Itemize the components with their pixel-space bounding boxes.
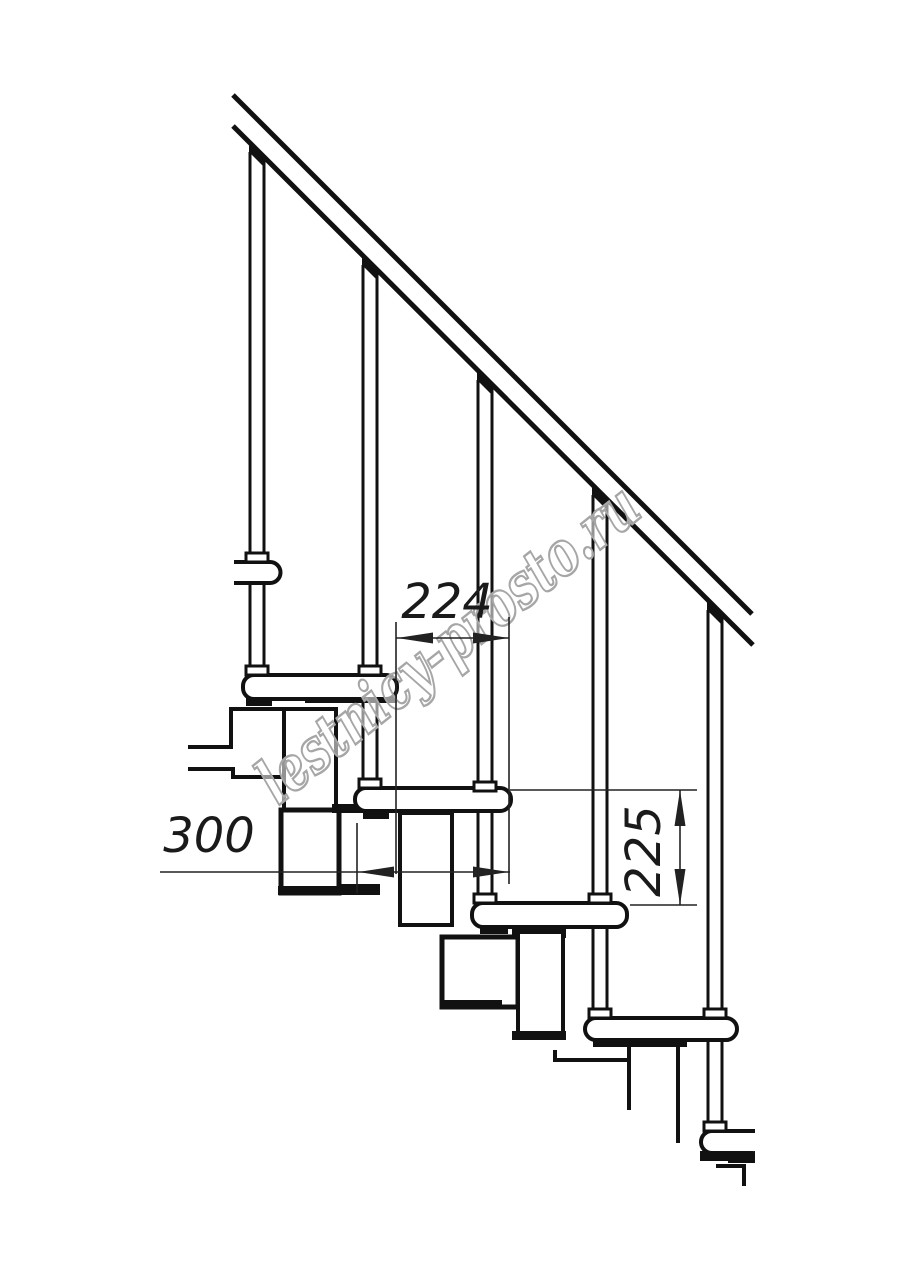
baluster-3-lower [478, 811, 492, 894]
baluster-3-collar-a [474, 782, 496, 791]
module-tube-2 [400, 813, 452, 925]
dimension-225-arrow-down [675, 869, 686, 905]
baluster-5-collar-a [704, 1009, 726, 1018]
baluster-5-lower [708, 1040, 722, 1122]
tread-6 [701, 1131, 755, 1153]
baluster-1 [246, 143, 268, 675]
module-tube-3 [518, 932, 563, 1035]
module-plate-3-bottom [512, 1031, 566, 1040]
module-connector-1 [338, 884, 380, 895]
tread-5 [585, 1018, 737, 1040]
dimension-300-arrow-left [358, 867, 394, 878]
baluster-1-collar-b [246, 666, 268, 675]
module-collar-1 [281, 810, 339, 893]
baluster-1-lower [250, 583, 264, 666]
module-collar-2-plate [440, 1000, 502, 1009]
baluster-5 [704, 601, 726, 1131]
module-collar-2 [442, 937, 518, 1007]
baluster-5-upper [708, 610, 722, 1009]
module-collar-1-plate [278, 886, 342, 895]
dimension-300-label: 300 [163, 808, 255, 864]
baluster-2-collar-b [359, 779, 381, 788]
baluster-1-upper [250, 152, 264, 553]
baluster-2-upper [363, 265, 377, 666]
technical-drawing: lestnicy-prosto.ru 224 300 225 [0, 0, 914, 1280]
baluster-1-collar-a [246, 553, 268, 562]
cut-line-mid [555, 1050, 627, 1060]
baluster-4-lower [593, 927, 607, 1009]
dimension-225: 225 [616, 790, 686, 905]
baluster-4-collar-b [589, 1009, 611, 1018]
baluster-5-collar-b [704, 1122, 726, 1131]
baluster-3-collar-b [474, 894, 496, 903]
baluster-4-collar-a [589, 894, 611, 903]
tread-1 [234, 562, 281, 583]
dimension-225-label: 225 [616, 805, 672, 897]
cut-line-bottom [716, 1166, 744, 1186]
tread-4 [472, 903, 627, 927]
dimension-225-arrow-up [675, 790, 686, 826]
dimension-224-label: 224 [401, 574, 493, 630]
staircase-drawing-canvas: lestnicy-prosto.ru 224 300 225 [0, 0, 914, 1280]
